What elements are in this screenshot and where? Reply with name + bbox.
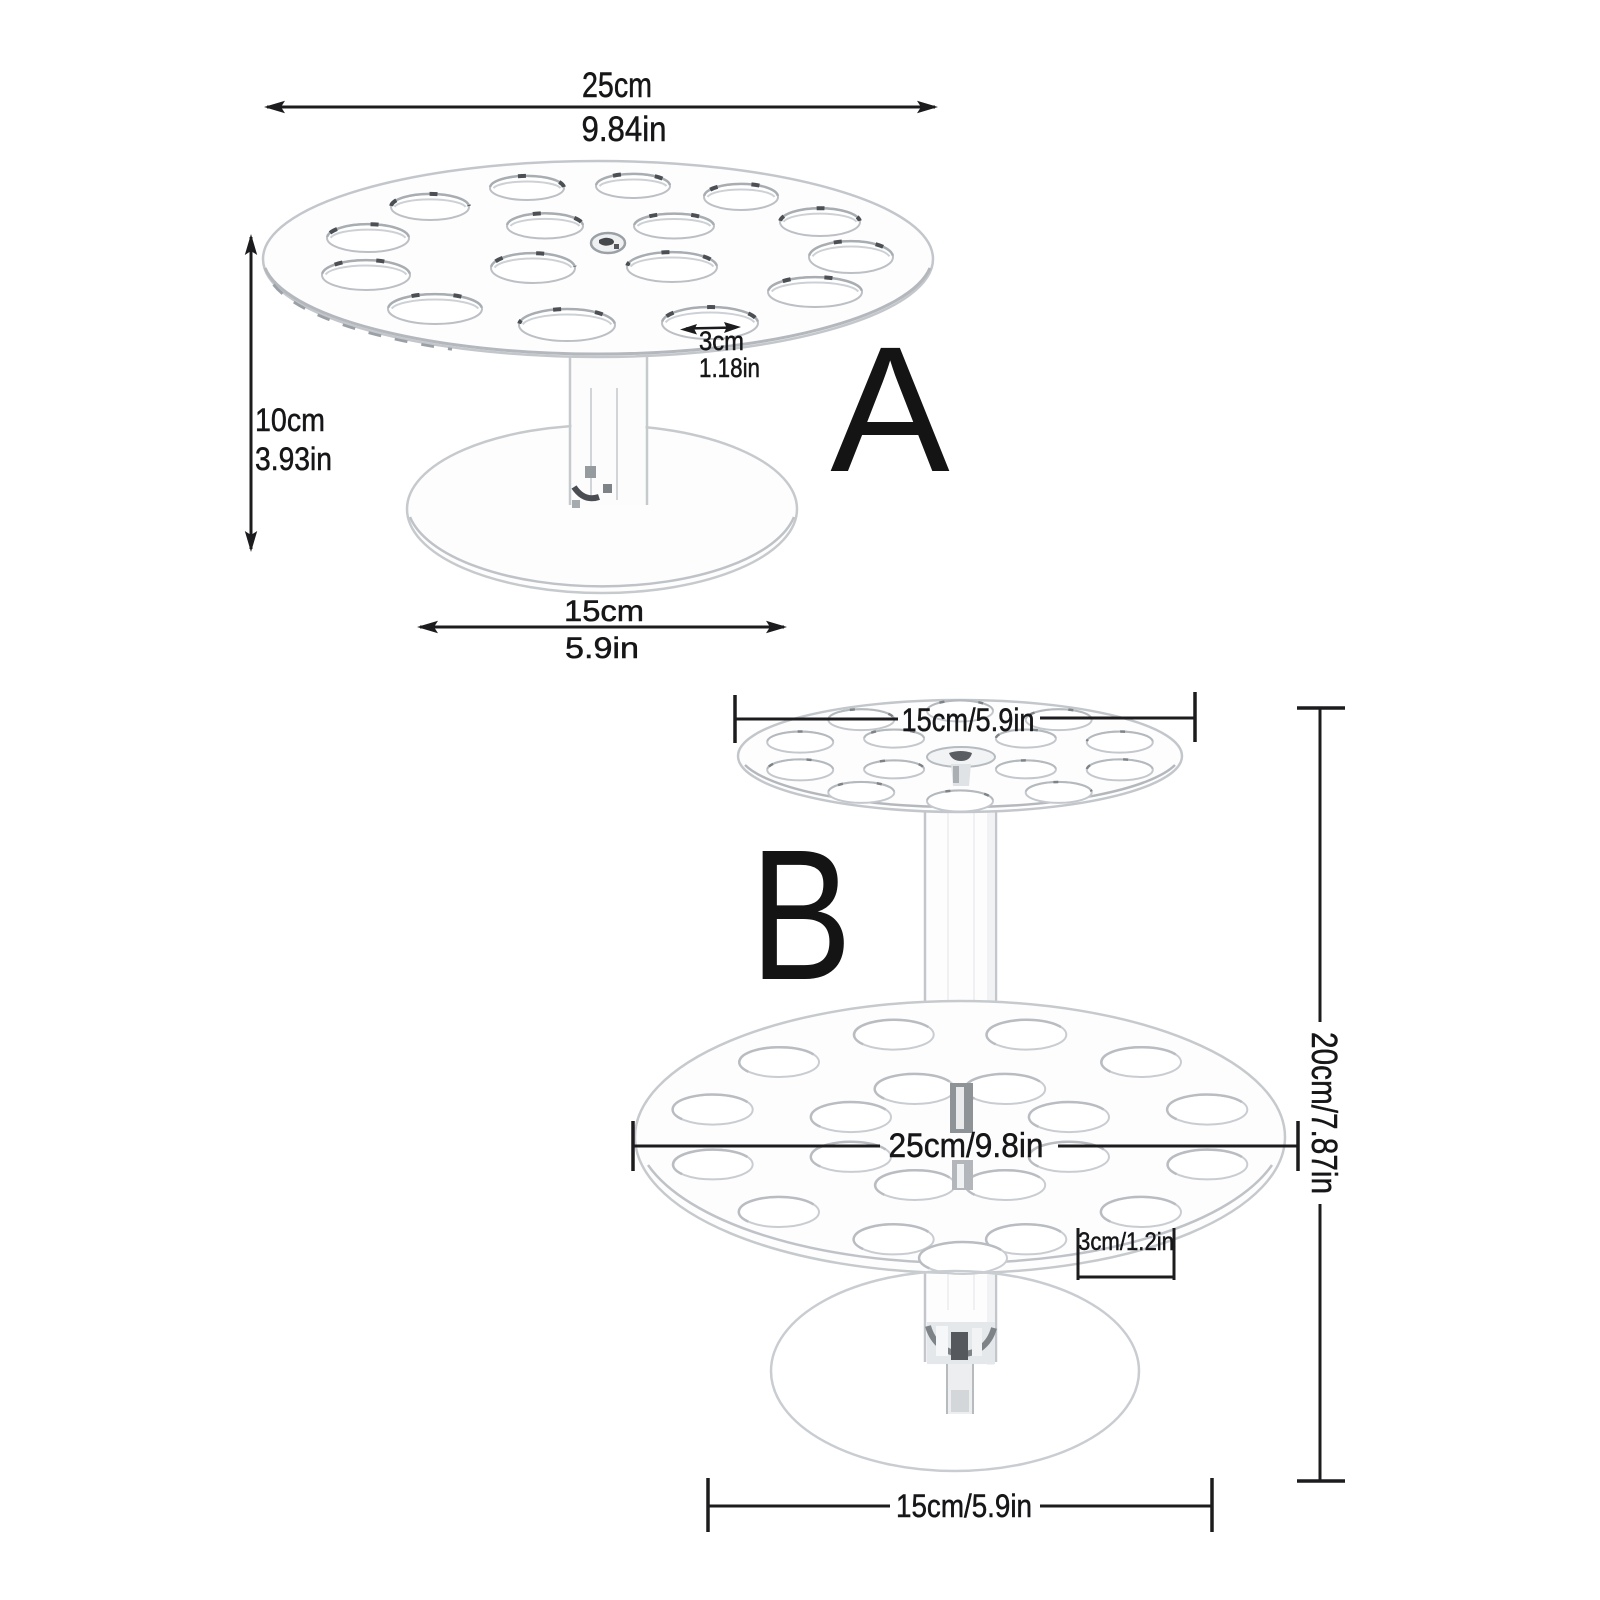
svg-text:5.9in: 5.9in xyxy=(565,632,639,665)
svg-text:25cm: 25cm xyxy=(582,66,652,105)
svg-text:15cm: 15cm xyxy=(564,595,644,628)
svg-text:3.93in: 3.93in xyxy=(255,441,332,477)
svg-text:10cm: 10cm xyxy=(255,402,325,438)
svg-text:3cm: 3cm xyxy=(699,326,744,356)
svg-text:3cm/1.2in: 3cm/1.2in xyxy=(1078,1228,1174,1256)
svg-text:B: B xyxy=(750,812,852,1020)
svg-text:20cm/7.87in: 20cm/7.87in xyxy=(1304,1032,1345,1194)
svg-text:9.84in: 9.84in xyxy=(582,110,667,149)
svg-text:15cm/5.9in: 15cm/5.9in xyxy=(902,702,1035,738)
svg-text:1.18in: 1.18in xyxy=(699,353,760,383)
svg-text:15cm/5.9in: 15cm/5.9in xyxy=(896,1488,1032,1524)
svg-text:A: A xyxy=(830,309,950,509)
svg-text:25cm/9.8in: 25cm/9.8in xyxy=(889,1127,1044,1165)
